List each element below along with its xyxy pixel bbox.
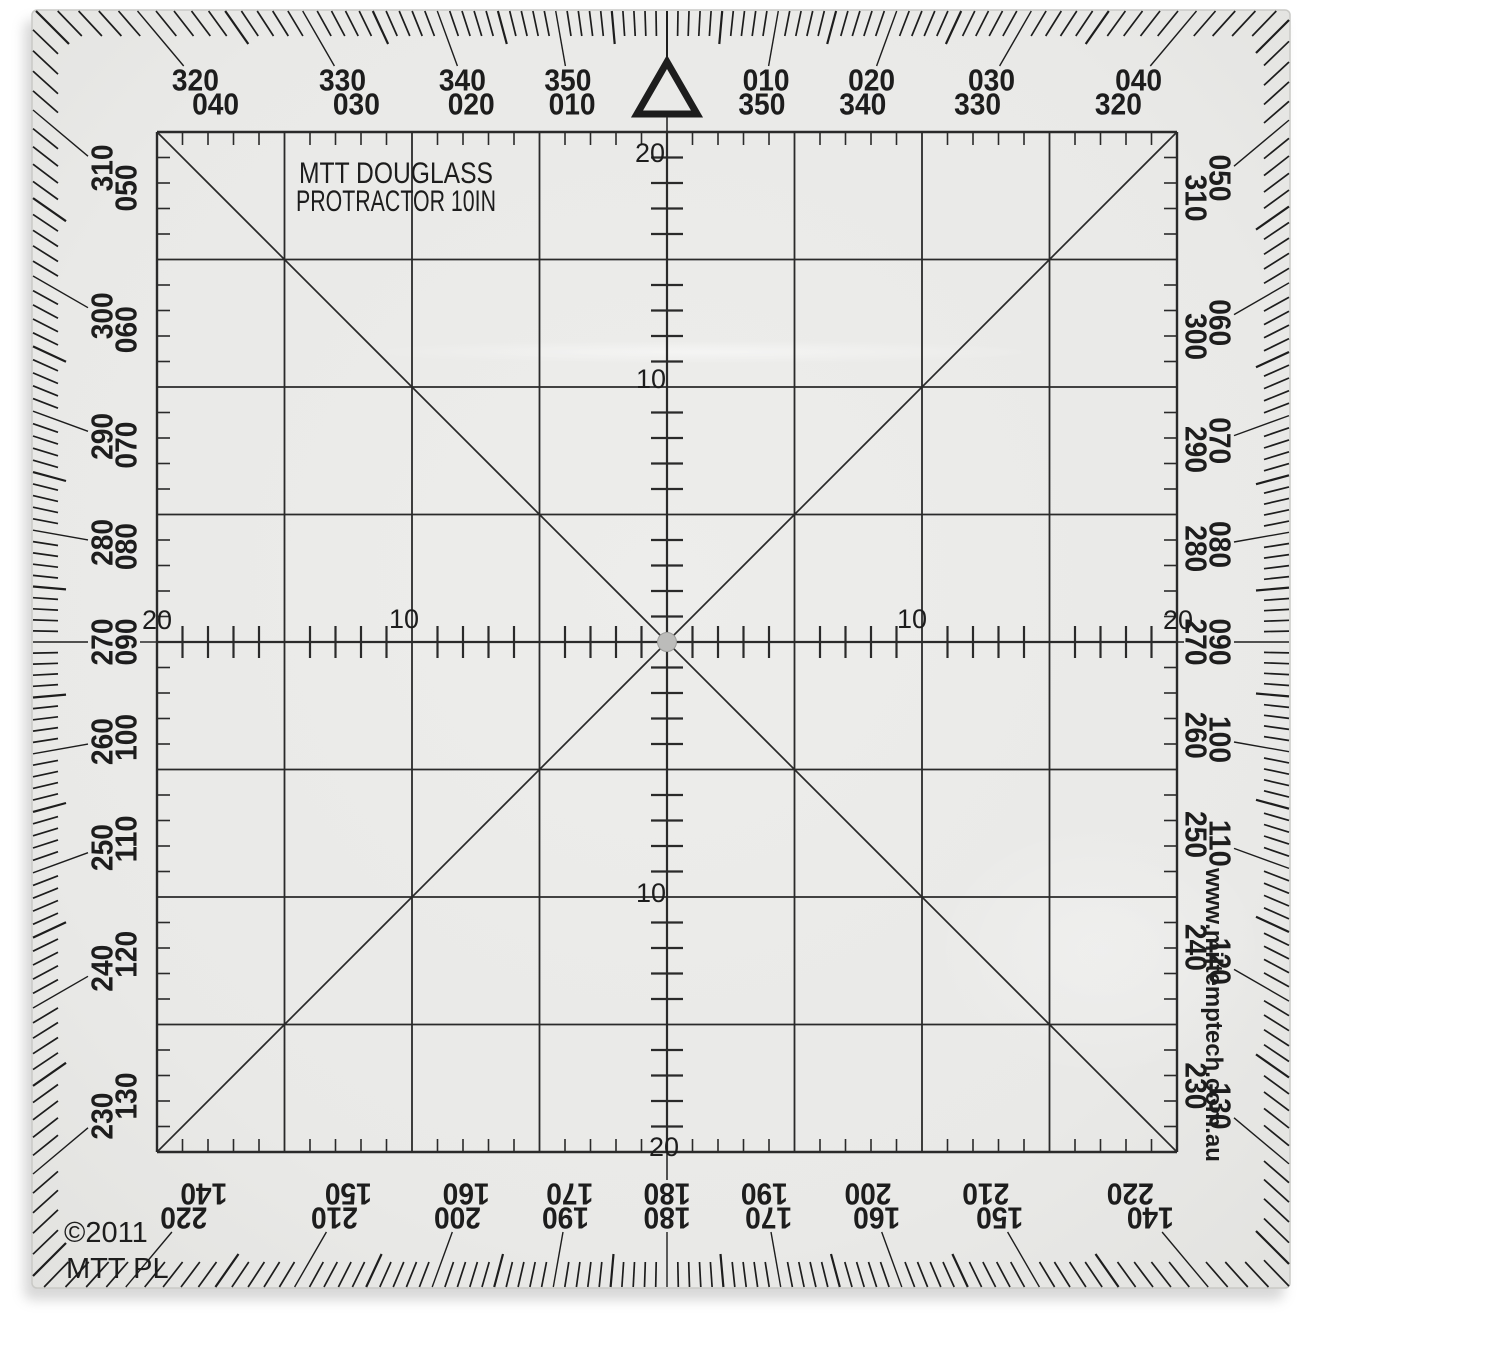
degree-label-inner: 040 [192,87,239,122]
reflection-highlight [360,340,1040,364]
vruler-value-label: 10 [636,364,666,394]
vruler-value-label: 20 [649,1132,679,1162]
center-hole [658,633,677,652]
degree-tick [33,631,58,632]
degree-tick [656,1262,657,1287]
hruler-value-label: 10 [897,604,927,634]
degree-label-inner: 090 [109,619,144,666]
degree-tick [33,663,58,664]
degree-tick [1264,663,1289,664]
degree-tick [1264,652,1289,653]
degree-label-inner: 130 [109,1073,144,1120]
degree-label-inner: 300 [1179,313,1214,360]
degree-label-inner: 220 [1107,1177,1154,1212]
degree-label-inner: 050 [109,165,144,212]
degree-label-inner: 350 [738,87,785,122]
hruler-value-label: 20 [142,605,172,635]
degree-label-inner: 140 [180,1177,227,1212]
degree-label-inner: 260 [1179,712,1214,759]
degree-tick [678,1262,679,1287]
degree-label-inner: 060 [109,306,144,353]
degree-label-inner: 120 [109,931,144,978]
degree-label-inner: 150 [325,1177,372,1212]
hruler-value-label: 10 [389,604,419,634]
copyright-line-2: MTT PL [66,1253,169,1285]
degree-tick [645,11,646,36]
degree-label-inner: 030 [333,87,380,122]
degree-tick [1264,631,1289,632]
degree-label-inner: 020 [448,87,495,122]
degree-label-inner: 070 [109,422,144,469]
degree-label-inner: 010 [549,87,596,122]
degree-label-inner: 340 [839,87,886,122]
degree-tick [645,1262,646,1287]
vruler-value-label: 10 [636,878,666,908]
degree-label-inner: 190 [741,1177,788,1212]
photo-stage: 2010102020101020 32004033003034002035001… [0,0,1500,1369]
degree-tick [1264,620,1289,621]
degree-label-inner: 200 [844,1177,891,1212]
degree-label-inner: 320 [1095,87,1142,122]
degree-label-inner: 310 [1179,175,1214,222]
title-line-2: PROTRACTOR 10IN [296,185,496,218]
protractor-photo: 2010102020101020 32004033003034002035001… [0,0,1500,1369]
degree-label-inner: 270 [1179,619,1214,666]
degree-label-inner: 110 [109,815,144,862]
product-title: MTT DOUGLASS PROTRACTOR 10IN [296,157,496,218]
degree-label-inner: 290 [1179,426,1214,473]
degree-label-inner: 250 [1179,811,1214,858]
degree-label-inner: 170 [546,1177,593,1212]
vruler-value-label: 20 [635,138,665,168]
website-url: www.miltemptech.com.au [1200,867,1227,1162]
degree-label-inner: 280 [1179,525,1214,572]
degree-tick [33,653,58,654]
copyright-line-1: ©2011 [64,1217,148,1249]
degree-label-inner: 180 [644,1177,691,1212]
degree-label-inner: 160 [443,1177,490,1212]
degree-tick [688,11,689,36]
degree-tick [33,620,58,621]
degree-label-inner: 210 [962,1177,1009,1212]
degree-label-inner: 330 [954,87,1001,122]
degree-tick [689,1262,690,1287]
degree-label-inner: 080 [109,523,144,570]
degree-label-inner: 100 [109,714,144,761]
